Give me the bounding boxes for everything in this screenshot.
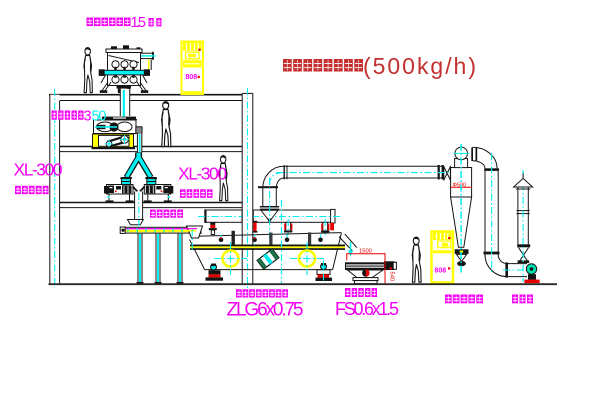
svg-text:Φ500: Φ500 (453, 182, 467, 188)
svg-text:FS0.6x1.5: FS0.6x1.5 (335, 299, 399, 319)
svg-text:XL-300: XL-300 (178, 164, 227, 184)
svg-text:1.5: 1.5 (131, 15, 147, 31)
svg-text:50: 50 (92, 109, 107, 125)
svg-text:XL-300: XL-300 (14, 160, 63, 180)
svg-text:808: 808 (435, 268, 447, 275)
svg-text:1500: 1500 (359, 249, 372, 255)
svg-text:(500kg/h): (500kg/h) (363, 53, 476, 79)
svg-text:540: 540 (389, 272, 395, 282)
svg-text:ZLG6x0.75: ZLG6x0.75 (227, 300, 304, 321)
svg-text:3: 3 (84, 109, 92, 125)
svg-text:808: 808 (186, 74, 198, 81)
